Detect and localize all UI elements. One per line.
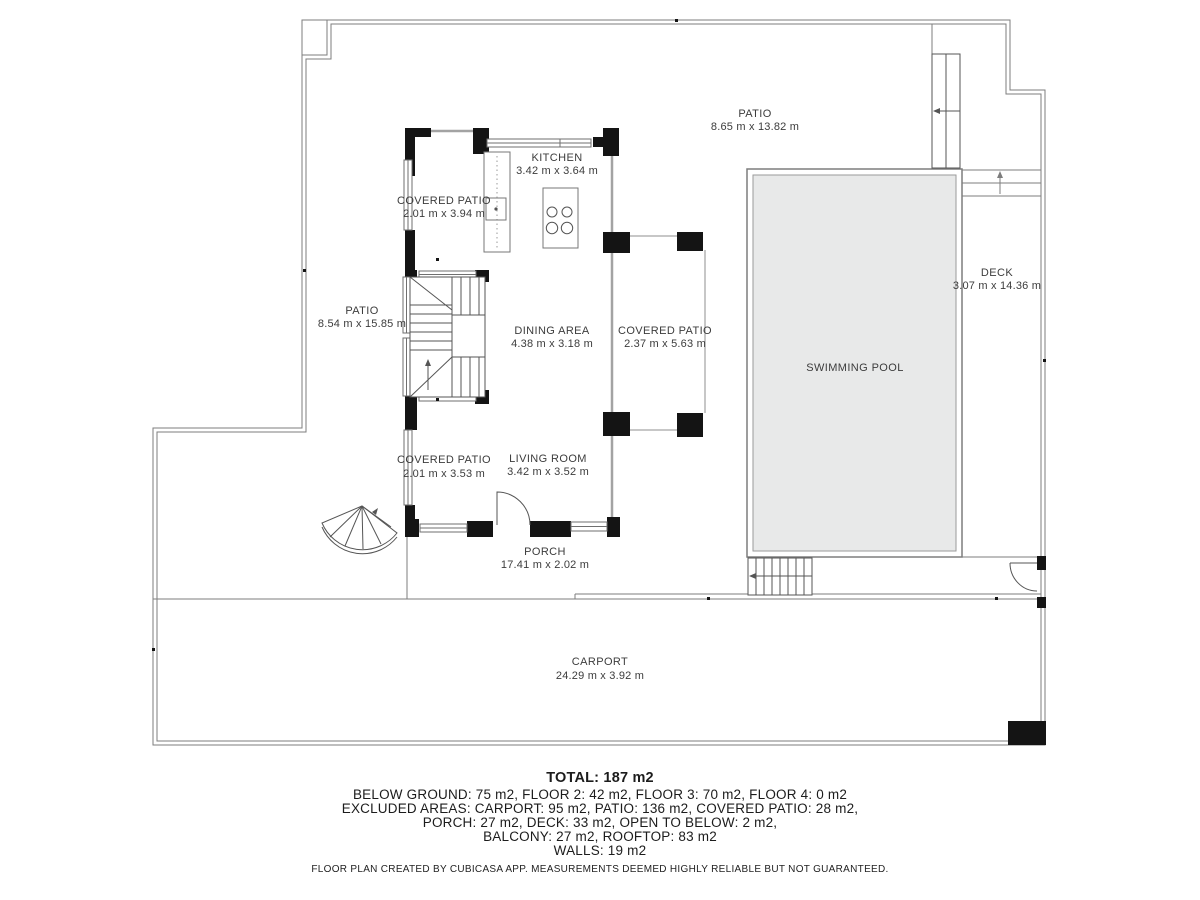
dims-patio-left: 8.54 m x 15.85 m <box>318 318 406 330</box>
excluded-line-3: BALCONY: 27 m2, ROOFTOP: 83 m2 <box>0 830 1200 844</box>
dims-porch: 17.41 m x 2.02 m <box>501 559 589 571</box>
carport-corner-wall <box>1008 721 1046 745</box>
label-kitchen: KITCHEN <box>531 152 582 164</box>
label-carport: CARPORT <box>572 656 628 668</box>
dims-patio-top: 8.65 m x 13.82 m <box>711 121 799 133</box>
label-patio-left: PATIO <box>345 305 378 317</box>
stairs-top-right <box>932 24 960 169</box>
outline-top-left-notch <box>302 20 327 55</box>
walls-line: WALLS: 19 m2 <box>0 844 1200 858</box>
pillar <box>677 413 703 437</box>
total-area: TOTAL: 187 m2 <box>0 770 1200 786</box>
dims-covered-patio-top: 2.01 m x 3.94 m <box>403 208 485 220</box>
excluded-line-2: PORCH: 27 m2, DECK: 33 m2, OPEN TO BELOW… <box>0 816 1200 830</box>
label-patio-top: PATIO <box>738 108 771 120</box>
dims-covered-patio-right: 2.37 m x 5.63 m <box>624 338 706 350</box>
floors-line: BELOW GROUND: 75 m2, FLOOR 2: 42 m2, FLO… <box>0 788 1200 802</box>
area-summary: TOTAL: 187 m2 BELOW GROUND: 75 m2, FLOOR… <box>0 770 1200 858</box>
living-room-door <box>497 492 530 525</box>
deck-area <box>962 170 1041 557</box>
floor-plan-page: PATIO 8.65 m x 13.82 m KITCHEN 3.42 m x … <box>0 0 1200 900</box>
pillar <box>677 232 703 251</box>
disclaimer-text: FLOOR PLAN CREATED BY CUBICASA APP. MEAS… <box>0 864 1200 875</box>
pillar <box>603 232 630 253</box>
winder-stairs <box>322 506 397 554</box>
deck-arrow-head <box>997 171 1003 178</box>
excluded-line-1: EXCLUDED AREAS: CARPORT: 95 m2, PATIO: 1… <box>0 802 1200 816</box>
kitchen-island-stove <box>543 188 578 248</box>
dims-living-room: 3.42 m x 3.52 m <box>507 466 589 478</box>
label-dining-area: DINING AREA <box>514 325 590 337</box>
label-deck: DECK <box>981 267 1013 279</box>
label-covered-patio-bottom: COVERED PATIO <box>397 454 491 466</box>
label-covered-patio-right: COVERED PATIO <box>618 325 712 337</box>
label-porch: PORCH <box>524 546 566 558</box>
dims-carport: 24.29 m x 3.92 m <box>556 670 644 682</box>
porch-side-door <box>1010 563 1037 591</box>
dims-dining-area: 4.38 m x 3.18 m <box>511 338 593 350</box>
label-covered-patio-top: COVERED PATIO <box>397 195 491 207</box>
label-swimming-pool: SWIMMING POOL <box>806 362 903 374</box>
floor-plan-drawing: PATIO 8.65 m x 13.82 m KITCHEN 3.42 m x … <box>0 0 1200 760</box>
dims-covered-patio-bottom: 2.01 m x 3.53 m <box>403 468 485 480</box>
stairs-main <box>410 277 485 397</box>
dims-kitchen: 3.42 m x 3.64 m <box>516 165 598 177</box>
dims-deck: 3.07 m x 14.36 m <box>953 280 1041 292</box>
stairs-below-pool <box>748 558 812 595</box>
pillar <box>603 412 630 436</box>
label-living-room: LIVING ROOM <box>509 453 587 465</box>
